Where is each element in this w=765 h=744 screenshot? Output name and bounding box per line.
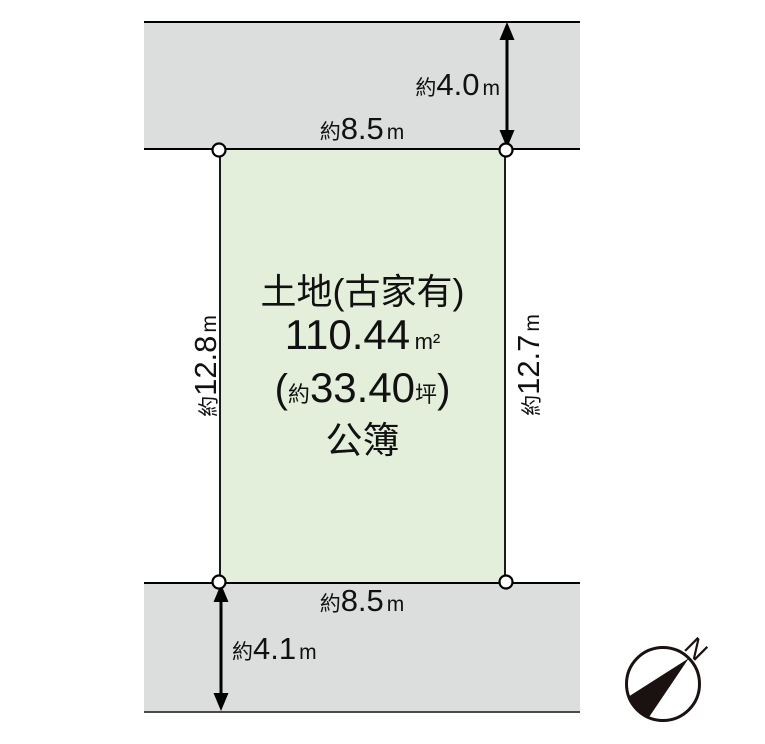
dim-unit: m [521,314,544,332]
dim-approx: 約 [198,396,221,417]
area-tsubo-unit: 坪 [415,382,437,407]
dim-top-edge: 約8.5m [320,111,405,147]
north-arrow-wedge [629,658,689,717]
dim-unit: m [483,77,501,100]
tsubo-approx: 約 [288,382,310,407]
dim-approx: 約 [521,395,544,416]
land-parcel: 土地(古家有) 110.44 m² (約33.40坪) 公簿 [219,150,506,582]
tsubo-paren-close: ) [437,367,450,411]
dim-bottom-road-width: 約4.1m [232,631,317,667]
compass-circle [627,648,700,721]
dim-value: 8.5 [341,583,384,618]
area-sqm-value: 110.44 [285,311,410,358]
land-register-type: 公簿 [261,419,465,462]
dim-unit: m [387,121,405,144]
dim-unit: m [299,641,317,664]
dim-approx: 約 [415,77,436,100]
land-area-tsubo: (約33.40坪) [261,366,465,419]
dim-value: 4.0 [436,67,479,102]
area-tsubo-value: 33.40 [310,364,415,411]
dim-approx: 約 [320,121,341,144]
dim-left-edge: 約12.8m [188,315,224,417]
dim-top-road-width: 約4.0m [415,67,500,103]
land-parcel-label: 土地(古家有) 110.44 m² (約33.40坪) 公簿 [261,270,465,462]
land-plot-diagram: 土地(古家有) 110.44 m² (約33.40坪) 公簿 約4.0m 約8.… [0,0,765,744]
dim-value: 4.1 [253,631,296,666]
area-sqm-unit: m² [415,329,441,354]
land-title: 土地(古家有) [261,270,465,313]
compass-north-label: N [678,631,713,666]
dim-value: 12.7 [511,335,546,395]
dim-unit: m [198,315,221,333]
dim-bottom-edge: 約8.5m [320,583,405,619]
dim-approx: 約 [232,641,253,664]
land-area-sqm: 110.44 m² [261,313,465,366]
dim-value: 12.8 [188,336,223,396]
dim-approx: 約 [320,593,341,616]
tsubo-paren-open: ( [275,367,288,411]
dim-value: 8.5 [341,111,384,146]
dim-right-edge: 約12.7m [511,314,547,416]
compass: N [627,631,714,720]
dim-unit: m [387,593,405,616]
